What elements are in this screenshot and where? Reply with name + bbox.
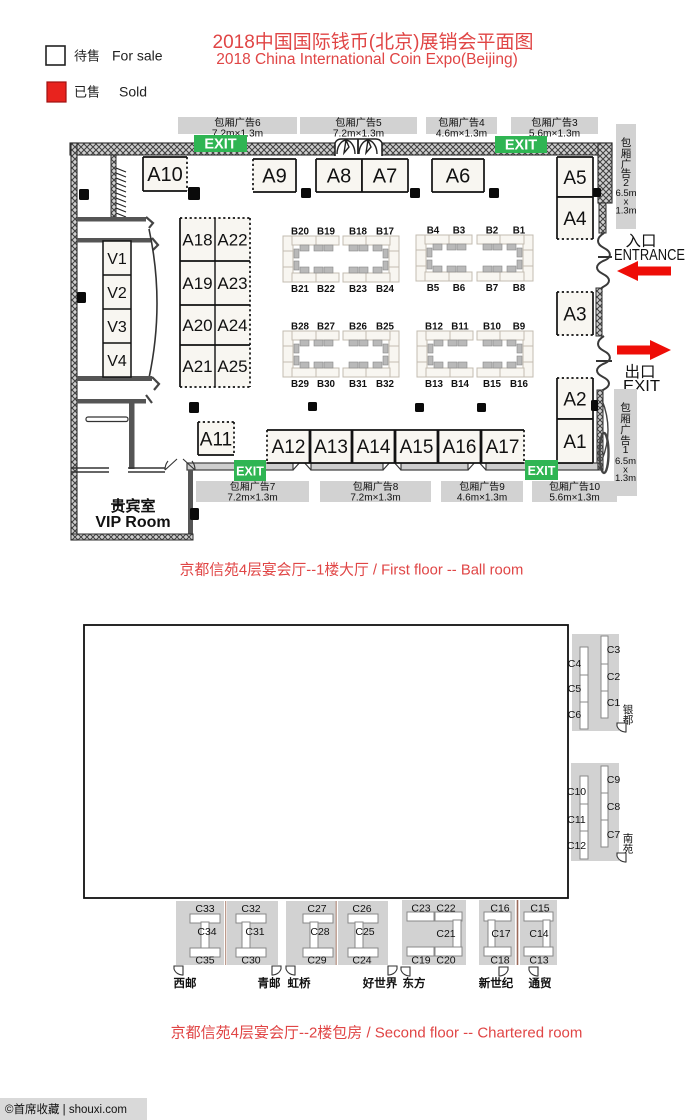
svg-text:B18: B18 (349, 227, 368, 238)
svg-text:C8: C8 (607, 801, 621, 813)
svg-text:B21: B21 (291, 284, 310, 295)
svg-text:B31: B31 (349, 379, 368, 390)
svg-text:包厢广告5: 包厢广告5 (335, 116, 382, 129)
svg-text:C34: C34 (197, 926, 216, 938)
svg-text:B3: B3 (453, 226, 466, 237)
svg-text:C28: C28 (310, 926, 329, 938)
svg-text:©首席收藏 | shouxi.com: ©首席收藏 | shouxi.com (5, 1102, 127, 1116)
svg-text:待售: 待售 (74, 49, 100, 64)
svg-text:京都信苑4层宴会厅--2楼包房 / Second floo: 京都信苑4层宴会厅--2楼包房 / Second floor -- Charte… (171, 1024, 583, 1042)
svg-text:EXIT: EXIT (236, 465, 264, 479)
svg-text:A10: A10 (147, 164, 183, 186)
svg-text:V3: V3 (107, 319, 127, 336)
svg-text:C13: C13 (529, 955, 548, 967)
svg-text:A15: A15 (400, 437, 434, 458)
svg-text:A12: A12 (272, 437, 306, 458)
svg-text:A8: A8 (327, 166, 351, 188)
svg-text:C27: C27 (307, 903, 326, 915)
svg-text:A21: A21 (182, 357, 212, 376)
svg-text:B9: B9 (513, 322, 526, 333)
svg-text:C3: C3 (607, 644, 621, 656)
svg-text:B27: B27 (317, 322, 336, 333)
svg-text:包厢广告9: 包厢广告9 (459, 480, 505, 493)
svg-text:C19: C19 (411, 955, 430, 967)
svg-text:C9: C9 (607, 774, 621, 786)
svg-text:2018 China International Coin: 2018 China International Coin Expo(Beiji… (216, 51, 518, 68)
svg-text:A20: A20 (182, 316, 212, 335)
svg-text:B2: B2 (486, 226, 499, 237)
svg-text:V4: V4 (107, 353, 127, 370)
svg-text:包厢广告4: 包厢广告4 (438, 116, 485, 129)
svg-text:For sale: For sale (112, 48, 163, 64)
svg-text:A1: A1 (563, 432, 586, 453)
svg-text:C22: C22 (436, 903, 455, 915)
svg-text:C14: C14 (529, 928, 548, 940)
svg-text:1: 1 (623, 444, 629, 456)
svg-text:A13: A13 (314, 437, 348, 458)
svg-text:B5: B5 (427, 283, 440, 294)
svg-text:4.6m×1.3m: 4.6m×1.3m (436, 129, 487, 140)
svg-text:C33: C33 (195, 903, 214, 915)
svg-text:C30: C30 (241, 955, 260, 967)
svg-text:B12: B12 (425, 322, 444, 333)
svg-text:贵宾室: 贵宾室 (110, 497, 155, 515)
svg-text:B15: B15 (483, 379, 502, 390)
svg-text:B1: B1 (513, 226, 526, 237)
svg-text:已售: 已售 (74, 85, 100, 100)
svg-text:C20: C20 (436, 955, 455, 967)
svg-text:好世界: 好世界 (362, 976, 398, 990)
svg-text:5.6m×1.3m: 5.6m×1.3m (549, 493, 599, 504)
svg-text:A5: A5 (563, 168, 586, 189)
svg-text:Sold: Sold (119, 84, 147, 100)
svg-text:东方: 东方 (403, 976, 426, 990)
svg-text:A23: A23 (217, 274, 247, 293)
svg-text:4.6m×1.3m: 4.6m×1.3m (457, 493, 507, 504)
svg-text:虹桥: 虹桥 (288, 976, 311, 990)
svg-text:C23: C23 (411, 903, 430, 915)
svg-text:C17: C17 (491, 928, 510, 940)
svg-text:1.3m: 1.3m (615, 206, 636, 217)
svg-text:B6: B6 (453, 283, 466, 294)
svg-text:B16: B16 (510, 379, 529, 390)
svg-text:7.2m×1.3m: 7.2m×1.3m (333, 129, 384, 140)
svg-text:B28: B28 (291, 322, 310, 333)
svg-text:新世纪: 新世纪 (479, 976, 514, 990)
svg-text:B22: B22 (317, 284, 336, 295)
svg-text:C4: C4 (568, 658, 582, 670)
svg-text:B4: B4 (427, 226, 440, 237)
svg-text:VIP Room: VIP Room (95, 514, 170, 531)
svg-text:C2: C2 (607, 671, 621, 683)
svg-text:C29: C29 (307, 955, 326, 967)
svg-text:包厢广告6: 包厢广告6 (214, 116, 261, 129)
svg-text:C11: C11 (567, 814, 586, 826)
svg-text:B14: B14 (451, 379, 470, 390)
svg-text:B7: B7 (486, 283, 499, 294)
svg-text:C12: C12 (567, 840, 586, 852)
svg-text:A9: A9 (262, 166, 286, 188)
svg-text:C32: C32 (241, 903, 260, 915)
svg-text:B17: B17 (376, 227, 395, 238)
svg-text:B32: B32 (376, 379, 395, 390)
svg-text:B11: B11 (451, 322, 469, 333)
svg-text:包厢广告10: 包厢广告10 (549, 480, 601, 493)
svg-text:C5: C5 (568, 683, 582, 695)
svg-text:C21: C21 (436, 928, 455, 940)
svg-text:B29: B29 (291, 379, 310, 390)
svg-text:包厢广告3: 包厢广告3 (531, 116, 578, 129)
svg-text:A14: A14 (357, 437, 391, 458)
svg-text:C25: C25 (355, 926, 374, 938)
svg-text:C18: C18 (490, 955, 509, 967)
svg-text:B13: B13 (425, 379, 444, 390)
svg-text:C1: C1 (607, 697, 621, 709)
svg-text:1.3m: 1.3m (615, 473, 636, 484)
svg-text:B30: B30 (317, 379, 336, 390)
svg-text:A7: A7 (373, 166, 397, 188)
svg-text:A22: A22 (217, 231, 247, 250)
svg-text:C7: C7 (607, 829, 621, 841)
svg-text:C6: C6 (568, 709, 582, 721)
svg-text:A4: A4 (563, 209, 587, 230)
svg-text:包厢广告7: 包厢广告7 (230, 480, 276, 493)
svg-text:2018中国国际钱币(北京)展销会平面图: 2018中国国际钱币(北京)展销会平面图 (213, 31, 534, 53)
svg-text:B10: B10 (483, 322, 502, 333)
svg-text:通贸: 通贸 (529, 976, 552, 990)
svg-text:7.2m×1.3m: 7.2m×1.3m (350, 493, 400, 504)
svg-text:B25: B25 (376, 322, 395, 333)
svg-text:青邮: 青邮 (258, 976, 281, 990)
svg-text:包厢广告8: 包厢广告8 (353, 480, 399, 493)
svg-text:A25: A25 (217, 357, 247, 376)
svg-text:A2: A2 (563, 389, 586, 410)
svg-text:A24: A24 (217, 316, 247, 335)
svg-text:A19: A19 (182, 274, 212, 293)
svg-text:A3: A3 (563, 304, 586, 325)
svg-text:V2: V2 (107, 285, 127, 302)
svg-text:EXIT: EXIT (204, 137, 236, 153)
svg-text:A18: A18 (182, 231, 212, 250)
svg-text:B19: B19 (317, 227, 336, 238)
svg-text:C15: C15 (530, 903, 549, 915)
svg-text:EXIT: EXIT (505, 138, 537, 154)
svg-text:A6: A6 (446, 166, 470, 188)
svg-text:A16: A16 (443, 437, 477, 458)
svg-text:ENTRANCE: ENTRANCE (614, 247, 685, 264)
svg-text:V1: V1 (107, 251, 127, 268)
svg-text:C24: C24 (352, 955, 371, 967)
svg-text:C16: C16 (490, 903, 509, 915)
svg-text:B24: B24 (376, 284, 395, 295)
svg-text:EXIT: EXIT (528, 464, 556, 478)
svg-text:B20: B20 (291, 227, 310, 238)
svg-text:C35: C35 (195, 955, 214, 967)
svg-text:京都信苑4层宴会厅--1楼大厅 / First floor: 京都信苑4层宴会厅--1楼大厅 / First floor -- Ball ro… (180, 561, 524, 579)
svg-text:西邮: 西邮 (174, 976, 197, 990)
svg-text:A11: A11 (200, 429, 232, 450)
svg-text:C10: C10 (567, 786, 586, 798)
svg-text:B26: B26 (349, 322, 368, 333)
svg-text:C31: C31 (245, 926, 264, 938)
svg-text:7.2m×1.3m: 7.2m×1.3m (227, 493, 277, 504)
svg-text:B8: B8 (513, 283, 526, 294)
svg-text:C26: C26 (352, 903, 371, 915)
svg-text:B23: B23 (349, 284, 368, 295)
svg-text:A17: A17 (486, 437, 520, 458)
